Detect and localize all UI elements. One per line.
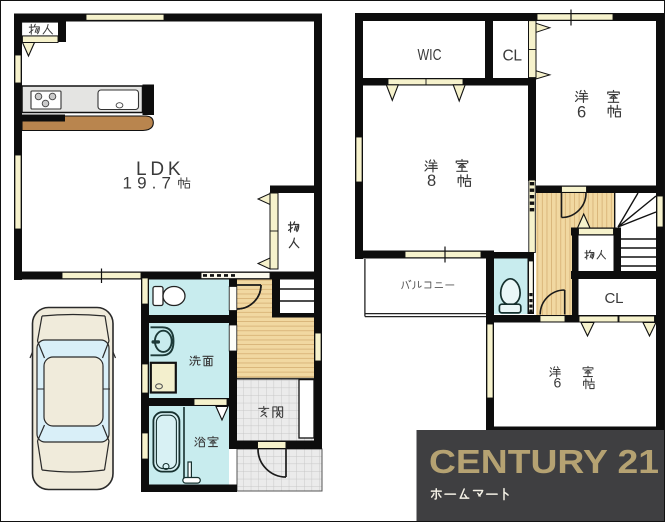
svg-text:WIC: WIC	[418, 47, 442, 64]
svg-text:6: 6	[577, 104, 586, 122]
svg-text:CL: CL	[503, 47, 523, 64]
svg-text:6: 6	[554, 375, 562, 391]
svg-text:8: 8	[427, 172, 436, 190]
svg-text:CENTURY 21: CENTURY 21	[429, 443, 659, 480]
svg-text:CL: CL	[605, 290, 624, 307]
